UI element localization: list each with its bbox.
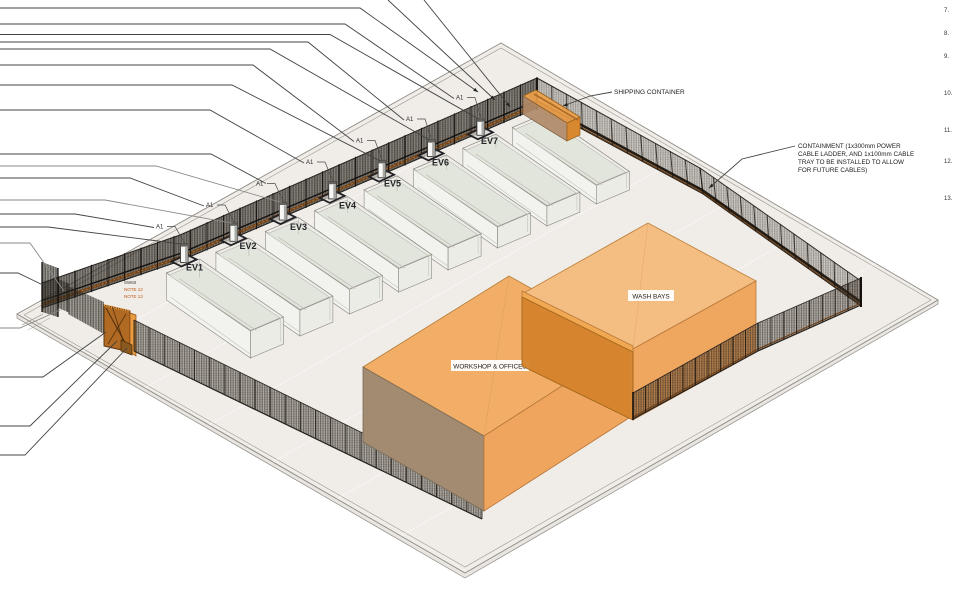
svg-text:A1: A1	[156, 225, 164, 231]
svg-text:EV4: EV4	[339, 201, 356, 211]
svg-text:TRAY TO BE INSTALLED TO ALLOW: TRAY TO BE INSTALLED TO ALLOW	[798, 159, 904, 166]
svg-text:EV5: EV5	[384, 179, 401, 189]
svg-text:11.: 11.	[944, 128, 952, 134]
svg-text:A1: A1	[206, 203, 214, 209]
svg-text:FOR FUTURE CABLES): FOR FUTURE CABLES)	[798, 167, 867, 174]
svg-text:13.: 13.	[944, 196, 953, 202]
svg-text:CABLE LADDER, AND 1x100mm CABL: CABLE LADDER, AND 1x100mm CABLE	[798, 151, 914, 158]
svg-text:WASH BAYS: WASH BAYS	[632, 294, 669, 301]
svg-text:CONTAINMENT (1x300mm POWER: CONTAINMENT (1x300mm POWER	[798, 143, 901, 150]
svg-text:A1: A1	[456, 96, 464, 102]
svg-text:10.: 10.	[944, 91, 953, 97]
svg-text:NOTE 13: NOTE 13	[124, 294, 143, 299]
svg-text:EV1: EV1	[186, 263, 203, 273]
svg-text:EV2: EV2	[240, 241, 257, 251]
svg-text:EV3: EV3	[290, 222, 307, 232]
svg-text:NOTE 12: NOTE 12	[124, 287, 143, 292]
svg-text:EV7: EV7	[481, 136, 498, 146]
svg-text:SW60: SW60	[124, 280, 137, 285]
svg-text:SHIPPING CONTAINER: SHIPPING CONTAINER	[614, 89, 685, 96]
svg-text:A1: A1	[356, 139, 364, 145]
svg-text:EV6: EV6	[432, 158, 449, 168]
svg-text:A1: A1	[306, 160, 314, 166]
svg-text:7.: 7.	[944, 8, 949, 14]
svg-text:A1: A1	[406, 117, 414, 123]
svg-text:A1: A1	[256, 182, 264, 188]
svg-text:8.: 8.	[944, 31, 949, 37]
svg-text:12.: 12.	[944, 159, 953, 165]
svg-text:WORKSHOP & OFFICES: WORKSHOP & OFFICES	[453, 364, 526, 371]
svg-text:9.: 9.	[944, 54, 949, 60]
